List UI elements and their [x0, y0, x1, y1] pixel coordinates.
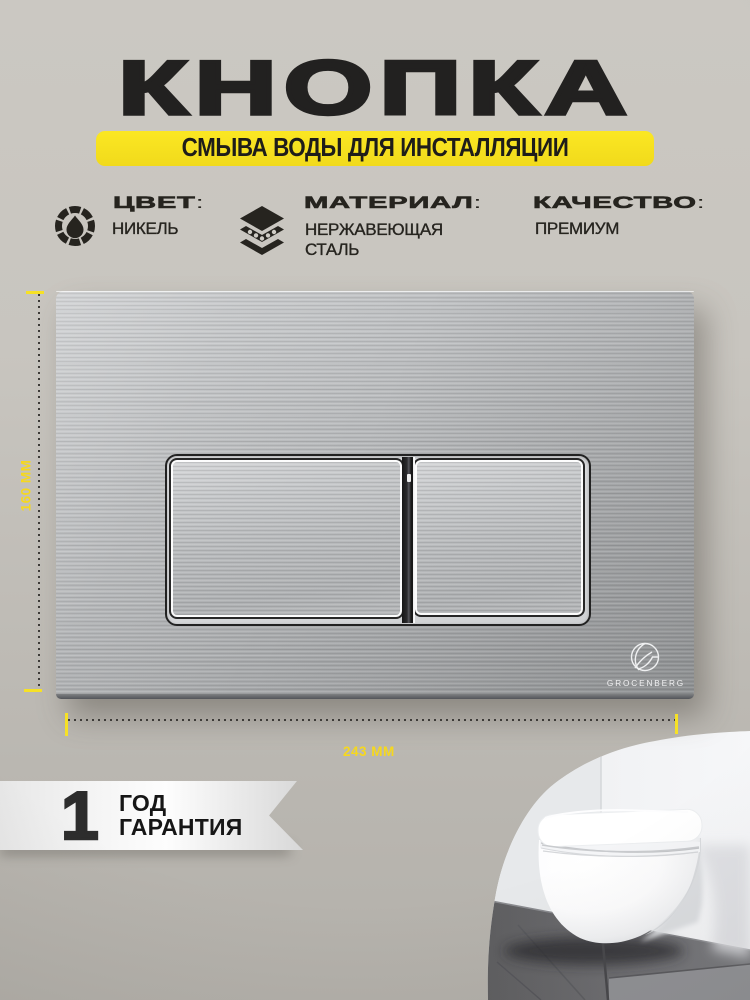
svg-text:GROCENBERG: GROCENBERG — [607, 679, 685, 688]
